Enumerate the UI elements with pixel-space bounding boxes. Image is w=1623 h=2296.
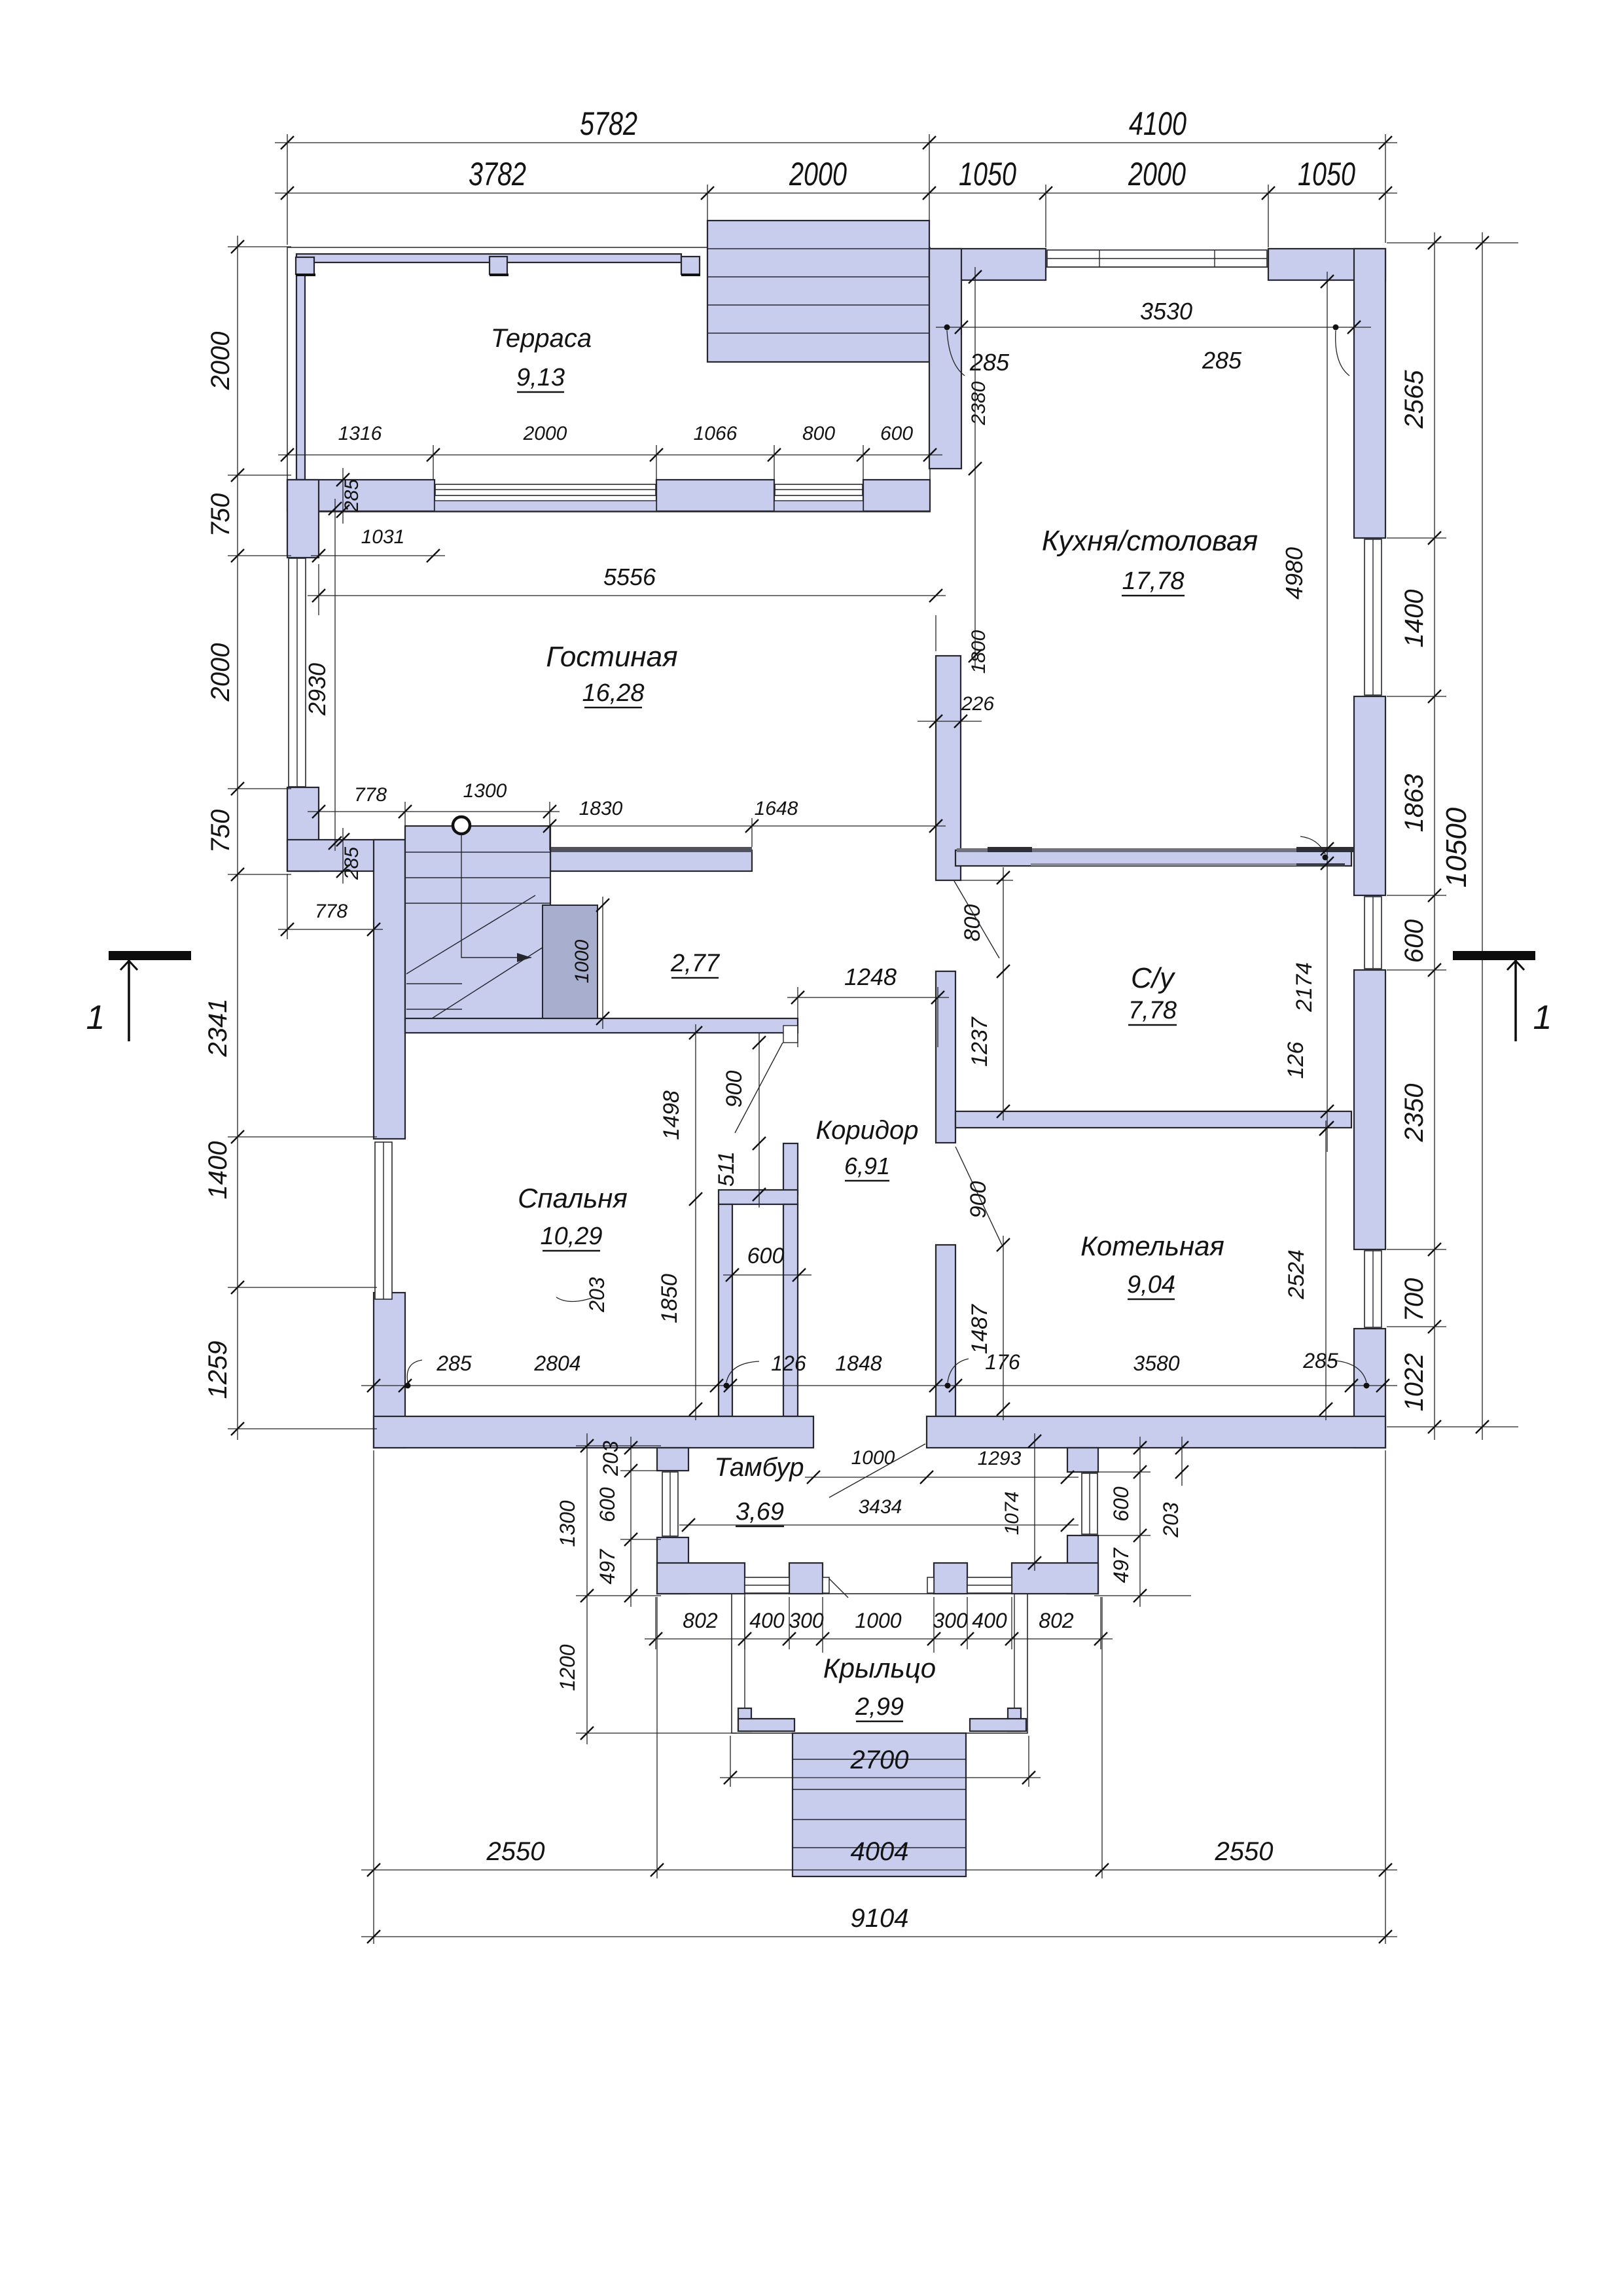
svg-text:700: 700 <box>1400 1278 1429 1322</box>
svg-text:2341: 2341 <box>204 999 232 1058</box>
svg-text:Крыльцо: Крыльцо <box>823 1653 936 1683</box>
svg-text:1400: 1400 <box>204 1141 232 1200</box>
svg-text:9104: 9104 <box>851 1904 909 1933</box>
svg-text:С/у: С/у <box>1131 962 1176 994</box>
svg-text:1022: 1022 <box>1400 1354 1429 1412</box>
svg-text:2174: 2174 <box>1292 962 1317 1013</box>
svg-text:1300: 1300 <box>556 1500 579 1547</box>
svg-text:16,28: 16,28 <box>582 679 644 707</box>
svg-text:3,69: 3,69 <box>736 1498 784 1526</box>
svg-text:1293: 1293 <box>978 1448 1022 1469</box>
svg-text:Терраса: Терраса <box>491 324 592 353</box>
svg-text:Кухня/столовая: Кухня/столовая <box>1042 525 1258 557</box>
svg-text:1050: 1050 <box>1298 156 1355 192</box>
svg-text:1066: 1066 <box>694 423 738 444</box>
svg-text:2550: 2550 <box>486 1837 545 1866</box>
svg-text:900: 900 <box>722 1071 747 1108</box>
svg-text:226: 226 <box>961 693 994 715</box>
svg-text:802: 802 <box>683 1609 718 1632</box>
svg-text:1000: 1000 <box>855 1609 901 1632</box>
svg-text:9,13: 9,13 <box>516 364 565 391</box>
svg-text:1400: 1400 <box>1400 590 1429 648</box>
svg-text:Гостиная: Гостиная <box>546 641 677 673</box>
svg-text:2380: 2380 <box>968 381 990 425</box>
svg-text:126: 126 <box>771 1352 806 1375</box>
svg-text:778: 778 <box>354 784 387 806</box>
svg-text:4980: 4980 <box>1281 547 1308 600</box>
svg-text:1648: 1648 <box>755 798 798 819</box>
svg-text:497: 497 <box>1109 1547 1133 1583</box>
svg-text:10500: 10500 <box>1440 807 1472 888</box>
svg-text:300: 300 <box>933 1609 968 1632</box>
svg-text:Тамбур: Тамбур <box>714 1453 804 1482</box>
svg-text:1487: 1487 <box>967 1304 992 1354</box>
svg-text:2700: 2700 <box>850 1746 909 1774</box>
svg-text:285: 285 <box>436 1352 472 1375</box>
svg-text:1031: 1031 <box>361 526 405 548</box>
svg-text:497: 497 <box>596 1549 619 1585</box>
svg-text:2350: 2350 <box>1400 1084 1429 1143</box>
svg-text:2000: 2000 <box>206 643 235 702</box>
svg-text:4004: 4004 <box>851 1837 909 1866</box>
svg-text:600: 600 <box>596 1487 619 1522</box>
svg-text:6,91: 6,91 <box>844 1153 890 1179</box>
svg-text:4100: 4100 <box>1129 105 1186 142</box>
svg-text:1850: 1850 <box>657 1274 682 1323</box>
svg-text:285: 285 <box>1202 347 1242 374</box>
svg-text:1050: 1050 <box>959 156 1016 192</box>
svg-text:1830: 1830 <box>579 798 623 819</box>
svg-text:Спальня: Спальня <box>518 1183 628 1213</box>
svg-text:2000: 2000 <box>1128 156 1186 192</box>
svg-text:1848: 1848 <box>835 1352 882 1375</box>
svg-text:400: 400 <box>749 1609 785 1632</box>
svg-text:511: 511 <box>714 1151 739 1187</box>
svg-text:1863: 1863 <box>1400 774 1429 833</box>
svg-text:2524: 2524 <box>1284 1249 1309 1300</box>
svg-text:1800: 1800 <box>968 630 990 673</box>
svg-text:300: 300 <box>789 1609 824 1632</box>
svg-text:2804: 2804 <box>533 1352 580 1375</box>
svg-text:2000: 2000 <box>523 423 567 444</box>
svg-text:2565: 2565 <box>1400 370 1429 429</box>
svg-text:285: 285 <box>341 847 363 880</box>
svg-text:2550: 2550 <box>1215 1837 1274 1866</box>
svg-text:3434: 3434 <box>859 1496 902 1518</box>
svg-text:5556: 5556 <box>603 564 656 590</box>
svg-text:3782: 3782 <box>469 156 526 192</box>
svg-text:2000: 2000 <box>789 156 847 192</box>
svg-text:7,78: 7,78 <box>1128 997 1177 1024</box>
svg-text:3580: 3580 <box>1133 1352 1179 1375</box>
svg-text:203: 203 <box>1159 1502 1183 1538</box>
svg-text:600: 600 <box>1400 920 1429 963</box>
svg-text:750: 750 <box>206 493 235 537</box>
svg-text:2930: 2930 <box>304 663 330 716</box>
svg-text:Котельная: Котельная <box>1080 1230 1224 1261</box>
svg-text:1248: 1248 <box>844 963 897 990</box>
svg-text:1316: 1316 <box>338 423 382 444</box>
svg-text:1000: 1000 <box>571 939 593 983</box>
svg-text:2000: 2000 <box>206 332 235 391</box>
svg-text:2,77: 2,77 <box>670 950 721 977</box>
svg-text:1000: 1000 <box>851 1447 895 1469</box>
svg-text:400: 400 <box>972 1609 1007 1632</box>
svg-text:3530: 3530 <box>1140 298 1192 325</box>
svg-text:800: 800 <box>802 423 835 444</box>
svg-text:10,29: 10,29 <box>540 1223 602 1250</box>
svg-text:17,78: 17,78 <box>1122 567 1184 595</box>
svg-text:9,04: 9,04 <box>1127 1271 1175 1299</box>
svg-text:1300: 1300 <box>463 780 507 802</box>
svg-text:1200: 1200 <box>556 1644 579 1691</box>
svg-text:1259: 1259 <box>204 1341 232 1399</box>
svg-text:203: 203 <box>585 1277 609 1313</box>
svg-text:Коридор: Коридор <box>816 1116 919 1145</box>
svg-text:1: 1 <box>86 999 105 1037</box>
svg-text:600: 600 <box>1109 1486 1133 1522</box>
svg-text:1498: 1498 <box>659 1090 684 1140</box>
svg-text:203: 203 <box>599 1441 622 1477</box>
svg-text:600: 600 <box>880 423 913 444</box>
svg-text:750: 750 <box>206 810 235 853</box>
svg-text:285: 285 <box>341 479 363 512</box>
svg-text:1: 1 <box>1533 999 1552 1037</box>
svg-text:1074: 1074 <box>1001 1492 1023 1535</box>
svg-text:126: 126 <box>1283 1042 1308 1079</box>
svg-text:285: 285 <box>1302 1349 1338 1372</box>
svg-text:778: 778 <box>315 901 348 922</box>
svg-text:900: 900 <box>966 1181 991 1219</box>
svg-text:800: 800 <box>960 905 985 942</box>
svg-text:5782: 5782 <box>580 105 637 142</box>
svg-text:802: 802 <box>1039 1609 1074 1632</box>
svg-text:2,99: 2,99 <box>855 1693 904 1721</box>
svg-text:1237: 1237 <box>967 1016 992 1067</box>
svg-text:600: 600 <box>747 1244 785 1268</box>
